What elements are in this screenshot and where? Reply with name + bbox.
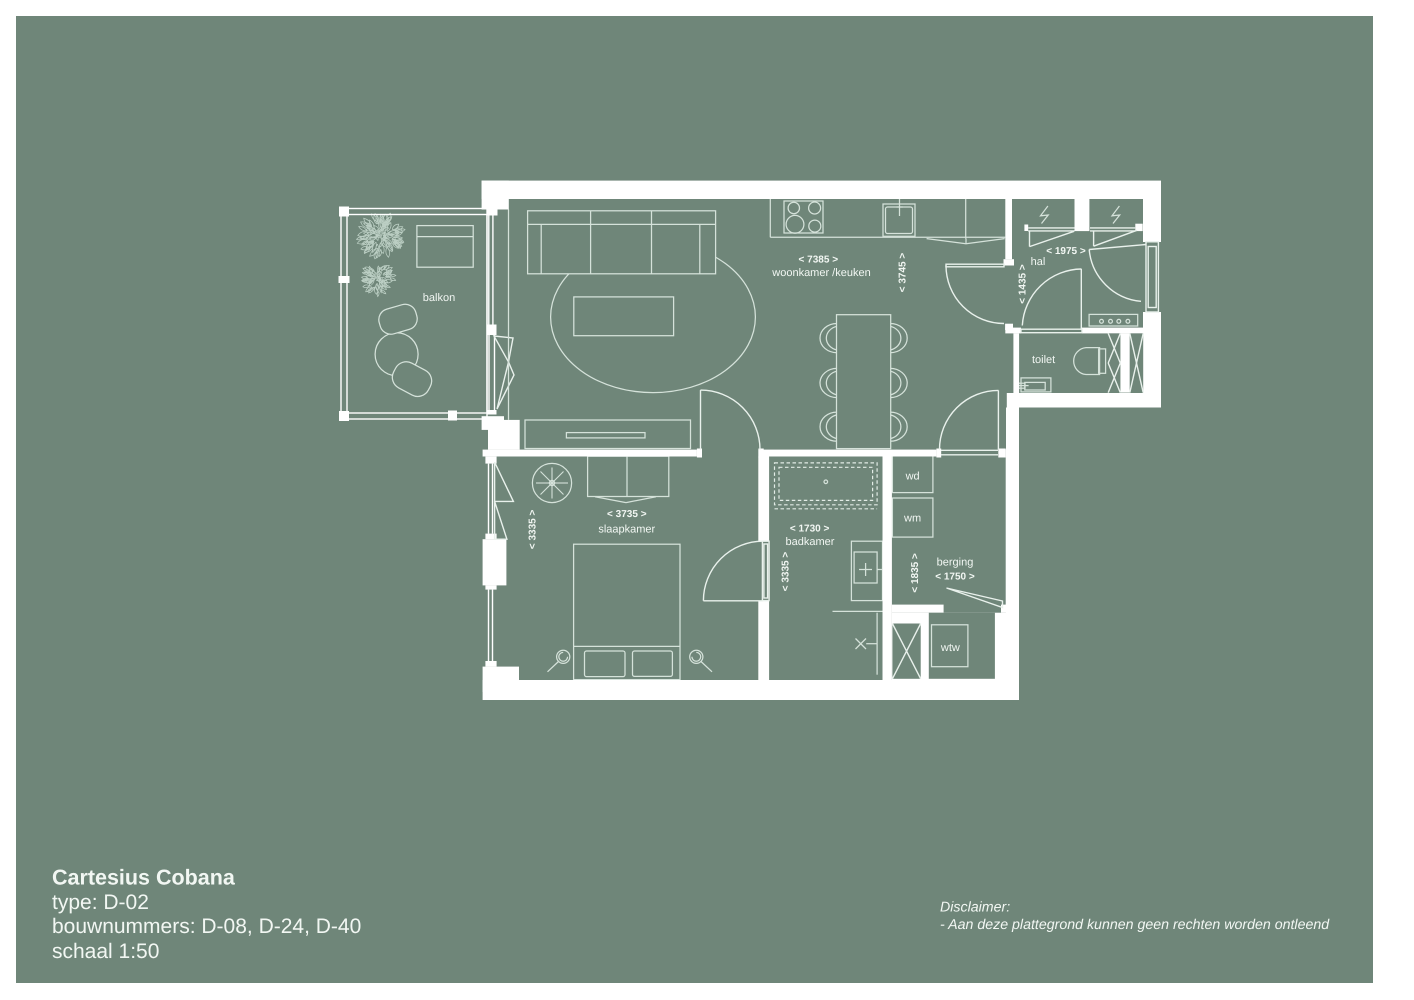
svg-text:bouwnummers: D-08, D-24, D-40: bouwnummers: D-08, D-24, D-40 — [52, 915, 361, 938]
svg-text:wtw: wtw — [940, 642, 960, 654]
svg-text:slaapkamer: slaapkamer — [598, 523, 655, 535]
svg-text:balkon: balkon — [423, 292, 455, 304]
svg-text:schaal 1:50: schaal 1:50 — [52, 940, 159, 963]
svg-text:< 1975 >: < 1975 > — [1046, 246, 1086, 257]
svg-text:- Aan deze plattegrond kunnen: - Aan deze plattegrond kunnen geen recht… — [940, 917, 1330, 933]
svg-text:< 3745 >: < 3745 > — [898, 253, 909, 293]
svg-text:< 1435 >: < 1435 > — [1017, 264, 1028, 304]
svg-text:woonkamer /keuken: woonkamer /keuken — [771, 267, 870, 279]
svg-text:wm: wm — [903, 513, 921, 525]
svg-text:Cartesius Cobana: Cartesius Cobana — [52, 866, 236, 890]
svg-text:< 7385 >: < 7385 > — [799, 254, 839, 265]
svg-text:< 3735 >: < 3735 > — [607, 509, 647, 520]
svg-text:wd: wd — [905, 471, 920, 483]
svg-text:type: D-02: type: D-02 — [52, 891, 149, 914]
svg-text:toilet: toilet — [1032, 354, 1055, 366]
svg-text:hal: hal — [1031, 256, 1046, 268]
svg-text:< 1750 >: < 1750 > — [935, 571, 975, 582]
svg-text:< 3335 >: < 3335 > — [781, 552, 792, 592]
svg-text:< 1730 >: < 1730 > — [790, 524, 830, 535]
svg-text:< 3335 >: < 3335 > — [528, 509, 539, 549]
svg-text:< 1835 >: < 1835 > — [910, 553, 921, 593]
svg-text:badkamer: badkamer — [786, 536, 835, 548]
svg-text:Disclaimer:: Disclaimer: — [940, 900, 1010, 916]
svg-text:berging: berging — [937, 557, 974, 569]
